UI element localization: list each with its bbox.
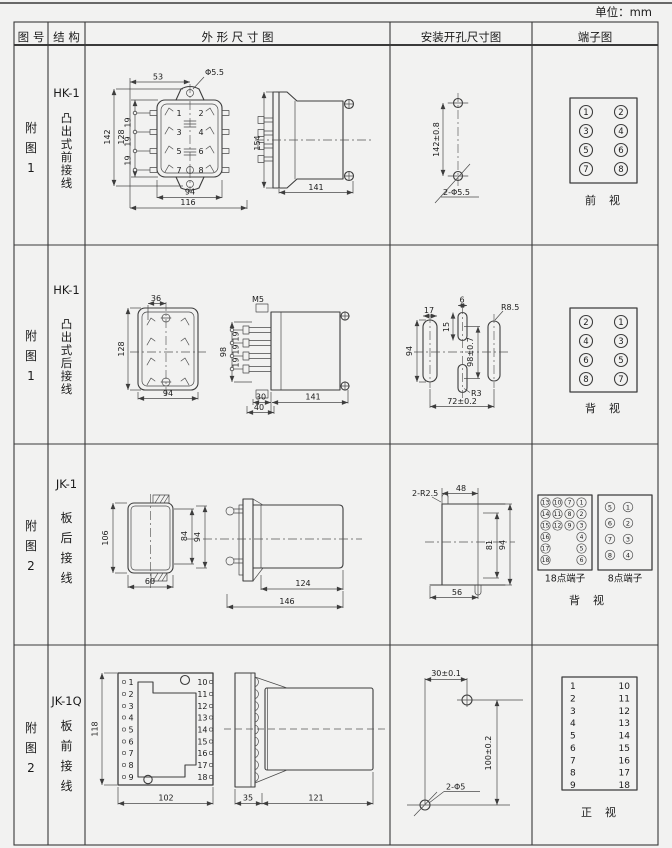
terminal-no: 17	[619, 769, 630, 779]
dim-35: 35	[243, 794, 253, 803]
row4-outline-side-view: 35 121	[224, 673, 386, 805]
view-caption: 背 视	[585, 401, 621, 415]
dim-128: 128	[117, 341, 126, 356]
dim-53: 53	[153, 73, 163, 82]
terminal-no: 6	[583, 356, 588, 366]
term-label: 7	[176, 166, 181, 175]
pin-label: 14	[197, 725, 207, 734]
terminal-no: 8	[608, 551, 612, 559]
terminal-no: 3	[570, 707, 576, 717]
terminal-no: 4	[626, 551, 630, 559]
terminal-no: 6	[580, 557, 584, 564]
terminal-no: 2	[626, 519, 630, 527]
terminal-no: 1	[580, 500, 584, 507]
terminal-no: 7	[618, 375, 623, 385]
term-label: 2	[198, 109, 203, 118]
terminal-no: 13	[619, 719, 630, 729]
term-label: 6	[198, 147, 203, 156]
terminal-no: 16	[542, 534, 550, 541]
pin-label: 1	[129, 678, 134, 687]
drawings-canvas: 1 2 3 4 5 6 7 8 53 Φ5.5 142 128 19 19 1	[0, 0, 672, 848]
dim-30: 30	[256, 393, 266, 402]
terminal-no: 15	[542, 523, 550, 530]
dim-98-tol: 98±0.7	[466, 337, 475, 367]
terminal-no: 3	[618, 337, 623, 347]
terminal-no: 5	[583, 146, 588, 156]
pin-label: 11	[197, 690, 207, 699]
row2-terminal-view: 2 1 4 3 6 5 8 7 背 视	[570, 308, 637, 415]
dim-124: 124	[295, 579, 310, 588]
terminal-no: 1	[618, 318, 623, 328]
terminal-no: 3	[583, 127, 588, 137]
terminal-no: 14	[542, 511, 550, 518]
dim-94: 94	[185, 188, 195, 197]
terminal-no: 7	[568, 500, 572, 507]
terminal-no: 4	[580, 534, 584, 541]
terminal-no: 9	[568, 523, 572, 530]
pin-label: 15	[197, 737, 207, 746]
pin-label: 6	[129, 737, 134, 746]
dim-118: 118	[91, 721, 100, 736]
pin-label: 12	[197, 702, 207, 711]
terminal-no: 4	[618, 127, 623, 137]
pin-label: 2	[129, 690, 134, 699]
dim-2-phi5-5: 2-Φ5.5	[443, 188, 470, 197]
dim-60: 60	[145, 577, 155, 586]
row2-outline-rear-view: 36 128 94	[117, 294, 206, 400]
row3-outline-side-view: 124 146	[186, 499, 362, 608]
dim-19: 19	[232, 331, 241, 341]
terminal-no: 5	[618, 356, 623, 366]
dim-56: 56	[452, 588, 462, 597]
terminal-no: 6	[618, 146, 623, 156]
pin-label: 18	[197, 773, 207, 782]
terminal-no: 7	[570, 756, 576, 766]
dim-142-tol: 142±0.8	[432, 122, 441, 157]
term-label: 4	[198, 128, 203, 137]
dim-142: 142	[103, 129, 112, 144]
terminal-no: 6	[608, 519, 612, 527]
dim-141: 141	[308, 183, 323, 192]
dim-19: 19	[232, 344, 241, 354]
dim-19: 19	[232, 357, 241, 367]
pin-label: 5	[129, 725, 134, 734]
terminal-no: 1	[626, 503, 630, 511]
view-caption: 正 视	[581, 805, 617, 819]
terminal-no: 9	[570, 781, 576, 791]
terminal-no: 2	[580, 511, 584, 518]
pin-label: 7	[129, 749, 134, 758]
dim-30-tol: 30±0.1	[431, 669, 461, 678]
terminal-no: 6	[570, 744, 576, 754]
dim-102: 102	[158, 794, 173, 803]
row1-outline-side-view: 154 141	[253, 92, 372, 194]
pin-label: 13	[197, 713, 207, 722]
terminal-no: 8	[568, 511, 572, 518]
terminal-no: 3	[580, 523, 584, 530]
term-label: 5	[176, 147, 181, 156]
terminal-no: 10	[554, 500, 562, 507]
term-label: 1	[176, 109, 181, 118]
dim-141: 141	[305, 393, 320, 402]
dim-98: 98	[219, 347, 228, 357]
terminal-no: 3	[626, 535, 630, 543]
dim-2-r2-5: 2-R2.5	[412, 489, 438, 498]
terminal-no: 1	[583, 108, 588, 118]
terminal-no: 15	[619, 744, 630, 754]
terminal-no: 8	[583, 375, 588, 385]
row4-terminal-view: 1 2 3 4 5 6 7 8 9 10 11 12 13 14 15 16 1…	[562, 677, 637, 819]
terminal-no: 2	[618, 108, 623, 118]
pin-label: 3	[129, 702, 134, 711]
row1-outline-front-view: 1 2 3 4 5 6 7 8 53 Φ5.5 142 128 19 19 1	[103, 68, 247, 209]
term-label: 8	[198, 166, 203, 175]
terminal-no: 18	[542, 557, 550, 564]
row2-mounting-view: 17 6 15 94 98±0.7 R8.5 R3 72±0.2	[405, 296, 519, 409]
dim-94: 94	[498, 540, 507, 550]
dim-72-tol: 72±0.2	[447, 397, 477, 406]
terminal-no: 11	[619, 694, 630, 704]
pin-label: 4	[129, 713, 134, 722]
dim-81: 81	[485, 540, 494, 550]
pin-label: 9	[129, 773, 134, 782]
row3-mounting-view: 48 2-R2.5 81 94 56	[412, 484, 515, 599]
terminal-no: 11	[554, 511, 562, 518]
terminal-no: 7	[608, 535, 612, 543]
dim-116: 116	[180, 198, 195, 207]
dim-19: 19	[124, 117, 133, 127]
dim-106: 106	[101, 530, 110, 545]
row1-mounting-view: 142±0.8 2-Φ5.5	[432, 93, 479, 203]
terminal-no: 8	[618, 165, 623, 175]
terminal-no: 7	[583, 165, 588, 175]
terminal-no: 10	[619, 682, 631, 692]
dim-17: 17	[424, 306, 434, 315]
terminal-no: 17	[542, 546, 550, 553]
terminal-no: 8	[570, 769, 576, 779]
row4-outline-front-view: 1 2 3 4 5 6 7 8 9 10 11 12 13 14 15 16 1…	[91, 673, 214, 805]
dim-r8-5: R8.5	[501, 303, 519, 312]
row1-terminal-view: 1 2 3 4 5 6 7 8 前 视	[570, 98, 637, 207]
pin-label: 17	[197, 761, 207, 770]
terminal-no: 4	[583, 337, 588, 347]
terminal-no: 18	[619, 781, 631, 791]
terminal-no: 5	[580, 546, 584, 553]
terminal-no: 5	[608, 503, 612, 511]
dim-154: 154	[253, 135, 262, 150]
dim-2-phi5: 2-Φ5	[446, 783, 465, 792]
dim-19: 19	[124, 155, 133, 165]
dim-94: 94	[193, 532, 202, 542]
dim-100-tol: 100±0.2	[484, 736, 493, 771]
terminal-no: 16	[619, 756, 631, 766]
view-caption: 前 视	[585, 193, 621, 207]
dim-phi5-5: Φ5.5	[205, 68, 224, 77]
terminal-no: 4	[570, 719, 576, 729]
dim-84: 84	[180, 531, 189, 541]
dim-48: 48	[456, 484, 466, 493]
dim-19: 19	[124, 136, 133, 146]
dim-40: 40	[254, 403, 264, 412]
terminal-18pt-label: 18点端子	[545, 573, 586, 585]
terminal-no: 2	[570, 694, 576, 704]
term-label: 3	[176, 128, 181, 137]
terminal-no: 5	[570, 732, 576, 742]
dim-121: 121	[308, 794, 323, 803]
dim-94: 94	[405, 346, 414, 356]
row2-outline-side-view: M5 98 19 19 19 30 40	[219, 295, 350, 414]
terminal-no: 1	[570, 682, 576, 692]
terminal-8pt-label: 8点端子	[608, 573, 643, 585]
terminal-no: 14	[619, 732, 631, 742]
terminal-no: 12	[554, 523, 562, 530]
pin-label: 10	[197, 678, 207, 687]
terminal-no: 12	[619, 707, 630, 717]
dim-15: 15	[442, 322, 451, 332]
terminal-no: 13	[542, 500, 550, 507]
view-caption: 背 视	[569, 593, 605, 607]
dim-94: 94	[163, 389, 173, 398]
dim-6: 6	[459, 296, 464, 305]
dim-146: 146	[279, 597, 294, 606]
dim-m5: M5	[252, 295, 264, 304]
row3-terminal-18pt: 13 10 7 1 14 11 8 2 15 12 9 3 16 4 17 5 …	[538, 495, 592, 585]
pin-label: 8	[129, 761, 134, 770]
row3-outline-front-view: 106 84 94 60	[101, 494, 207, 588]
dim-36: 36	[151, 294, 161, 303]
document-page: 单位：mm 图 号 结 构 外 形 尺 寸 图 安装开孔尺寸图 端子图 附 图 …	[0, 0, 672, 848]
pin-label: 16	[197, 749, 207, 758]
row4-mounting-view: 30±0.1 100±0.2 2-Φ5	[407, 669, 523, 816]
terminal-no: 2	[583, 318, 588, 328]
